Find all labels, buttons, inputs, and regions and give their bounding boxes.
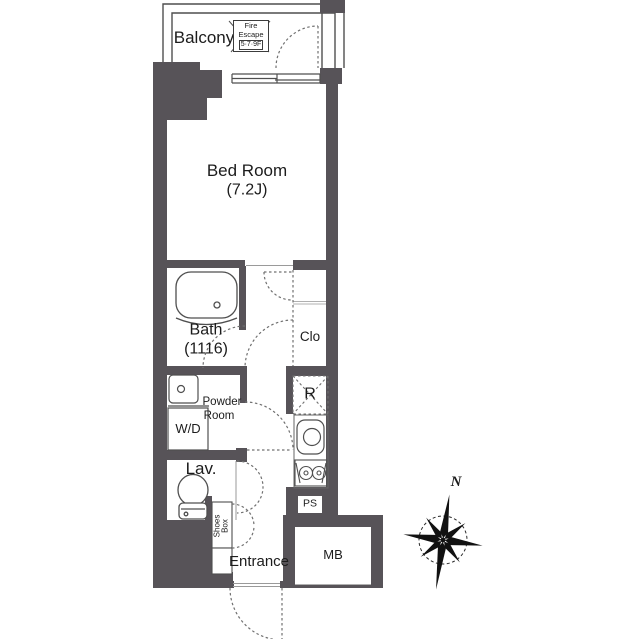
window-sliding-door <box>232 74 320 83</box>
balcony-label: Balcony <box>174 29 234 47</box>
stove-icon <box>295 460 327 486</box>
door-arc-fire-escape <box>276 26 318 68</box>
lavatory-label: Lav. <box>186 460 217 478</box>
door-arc-lavatory <box>237 461 263 513</box>
meter-box-label: MB <box>323 548 343 562</box>
bedroom-size: (7.2J) <box>227 183 268 200</box>
refrigerator-label: R <box>304 387 316 404</box>
kitchen-sink-icon <box>297 420 324 454</box>
bedroom-label: Bed Room <box>207 162 287 180</box>
compass-icon <box>396 489 489 595</box>
toilet-icon <box>178 475 208 520</box>
door-arc-closet-lower <box>245 270 293 368</box>
closet-label: Clo <box>300 330 320 344</box>
bathtub-icon <box>176 272 237 325</box>
shoes-box-line2: Box <box>222 515 230 538</box>
washer-dryer-label: W/D <box>175 422 200 436</box>
compass-north-label: N <box>451 475 462 491</box>
floor-plan-page: { "colors": { "wall": "#575358", "ink": … <box>0 0 640 639</box>
door-arc-hall-closet-upper <box>264 272 292 300</box>
bath-label: Bath <box>190 323 223 340</box>
door-arc-entrance <box>230 588 282 639</box>
door-arc-powder-room <box>245 402 293 450</box>
entrance-label: Entrance <box>229 554 289 570</box>
fire-escape-line2: Escape <box>234 31 268 40</box>
door-arc-shoes-box <box>232 504 254 548</box>
fire-escape-hatch-label: Fire Escape 5·7·9F <box>233 20 269 52</box>
pipe-space-label: PS <box>303 498 317 509</box>
bath-size: (1116) <box>184 342 228 359</box>
fire-escape-floors: 5·7·9F <box>239 40 264 50</box>
shoes-box-label: Shoes Box <box>214 515 231 538</box>
floor-plan-graphic <box>0 0 640 639</box>
powder-room-label-line2: Room <box>204 410 235 422</box>
powder-room-label-line1: Powder <box>203 396 242 408</box>
